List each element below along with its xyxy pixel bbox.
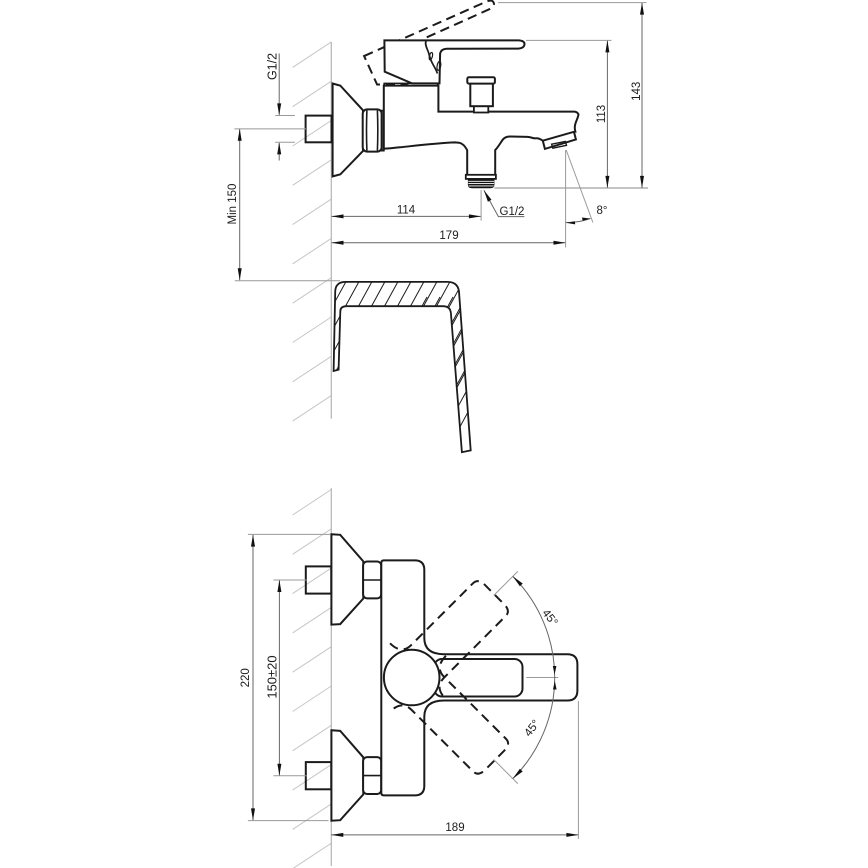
svg-text:8°: 8° [597,205,608,217]
svg-text:220: 220 [240,668,252,687]
svg-text:114: 114 [397,204,416,216]
svg-text:150±20: 150±20 [265,655,280,698]
svg-text:143: 143 [631,82,643,101]
svg-text:189: 189 [445,822,464,834]
svg-text:G1/2: G1/2 [500,206,525,218]
svg-text:113: 113 [596,105,608,123]
svg-text:45°: 45° [522,718,542,739]
svg-text:45°: 45° [539,607,559,628]
svg-text:179: 179 [439,230,458,242]
svg-text:Min 150: Min 150 [227,184,239,225]
svg-text:G1/2: G1/2 [265,53,279,80]
